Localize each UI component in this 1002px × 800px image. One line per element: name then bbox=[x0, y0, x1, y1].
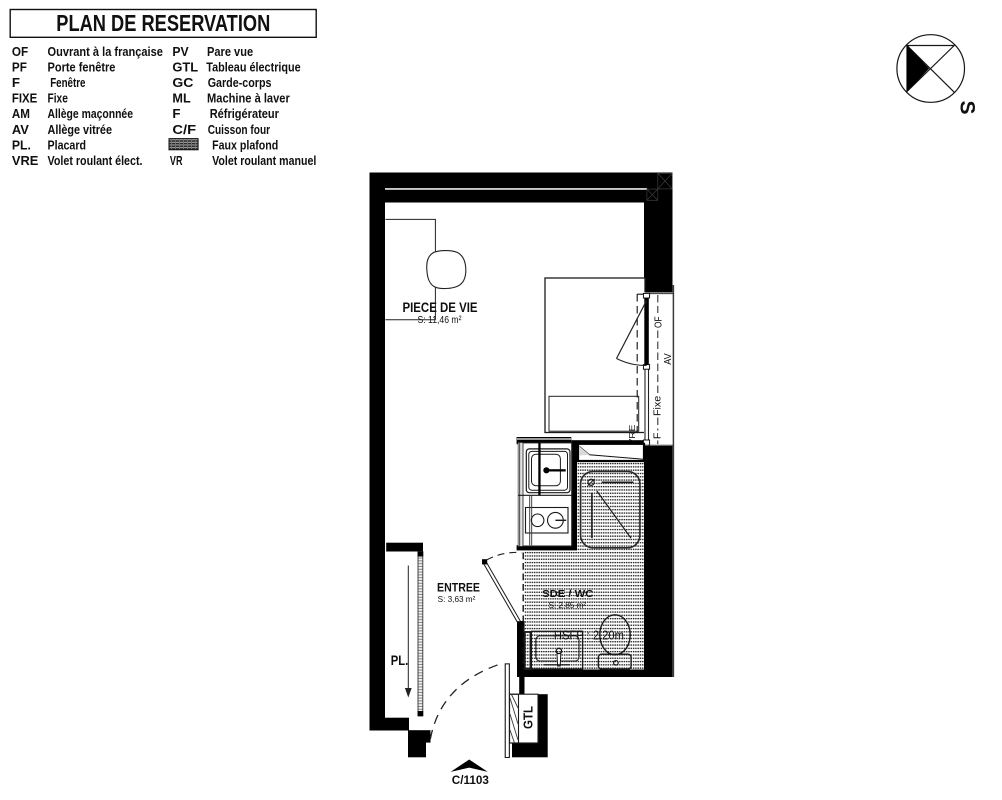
svg-text:Faux plafond: Faux plafond bbox=[212, 137, 278, 152]
svg-text:F: F bbox=[12, 75, 20, 90]
svg-text:GC: GC bbox=[172, 75, 194, 90]
svg-text:Cuisson four: Cuisson four bbox=[208, 122, 270, 137]
svg-text:Fixe: Fixe bbox=[48, 91, 68, 106]
svg-text:Machine à laver: Machine à laver bbox=[207, 91, 290, 106]
svg-text:Pare vue: Pare vue bbox=[207, 44, 253, 59]
svg-text:FIXE: FIXE bbox=[12, 91, 38, 106]
svg-text:ML: ML bbox=[172, 91, 190, 106]
svg-text:OF: OF bbox=[12, 44, 28, 59]
svg-text:AV: AV bbox=[12, 122, 29, 137]
svg-text:Volet roulant élect.: Volet roulant élect. bbox=[48, 153, 143, 168]
svg-text:S: 2,85 m²: S: 2,85 m² bbox=[548, 600, 586, 610]
svg-text:PL.: PL. bbox=[12, 137, 31, 152]
svg-text:Fixe: Fixe bbox=[653, 396, 664, 416]
svg-text:Ouvrant à la française: Ouvrant à la française bbox=[48, 44, 163, 59]
svg-text:Allège maçonnée: Allège maçonnée bbox=[48, 106, 134, 121]
svg-text:Réfrigérateur: Réfrigérateur bbox=[210, 106, 279, 121]
svg-text:F: F bbox=[172, 106, 180, 121]
svg-text:HSFP : 2,20m: HSFP : 2,20m bbox=[554, 628, 624, 642]
svg-text:GTL: GTL bbox=[522, 706, 536, 729]
svg-text:VRE: VRE bbox=[628, 424, 637, 446]
svg-text:VRE: VRE bbox=[12, 153, 39, 168]
svg-text:Porte fenêtre: Porte fenêtre bbox=[48, 59, 116, 74]
svg-text:PF: PF bbox=[12, 59, 27, 74]
svg-text:Fenêtre: Fenêtre bbox=[50, 75, 85, 90]
svg-text:PV: PV bbox=[172, 44, 189, 59]
svg-text:C/1103: C/1103 bbox=[452, 773, 489, 787]
svg-text:AM: AM bbox=[12, 106, 30, 121]
svg-text:S: S bbox=[956, 100, 979, 114]
svg-text:F: F bbox=[653, 433, 664, 440]
svg-text:S: 3,63 m²: S: 3,63 m² bbox=[438, 594, 476, 604]
svg-text:AV: AV bbox=[663, 353, 674, 365]
svg-text:VR: VR bbox=[170, 153, 183, 168]
svg-text:Allège vitrée: Allège vitrée bbox=[48, 122, 113, 137]
svg-text:ENTREE: ENTREE bbox=[437, 581, 480, 595]
svg-text:PLAN DE RESERVATION: PLAN DE RESERVATION bbox=[56, 10, 270, 36]
svg-text:C/F: C/F bbox=[172, 122, 196, 137]
svg-text:Volet roulant manuel: Volet roulant manuel bbox=[212, 153, 316, 168]
svg-text:Placard: Placard bbox=[48, 137, 87, 152]
svg-text:SDE / WC: SDE / WC bbox=[542, 589, 594, 600]
svg-text:PL.: PL. bbox=[391, 653, 409, 668]
svg-text:Garde-corps: Garde-corps bbox=[208, 75, 272, 90]
svg-text:OF: OF bbox=[654, 316, 665, 328]
svg-text:S: 11,46 m²: S: 11,46 m² bbox=[418, 315, 463, 326]
svg-text:Tableau électrique: Tableau électrique bbox=[206, 59, 300, 74]
svg-text:PIECE DE VIE: PIECE DE VIE bbox=[403, 300, 478, 315]
svg-text:GTL: GTL bbox=[172, 59, 198, 74]
